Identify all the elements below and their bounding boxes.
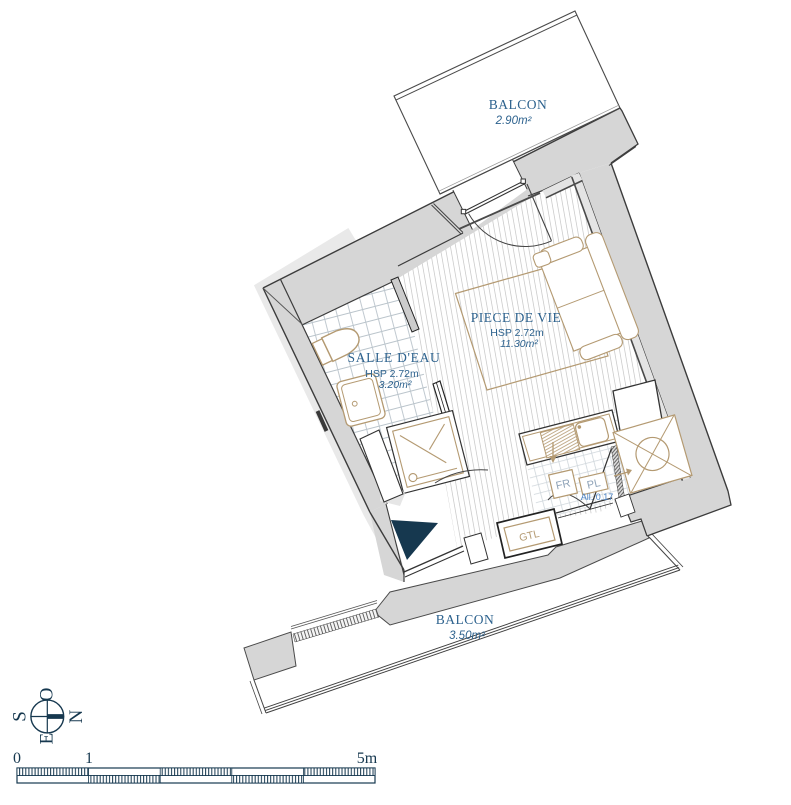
svg-text:2.90m²: 2.90m²: [495, 115, 533, 127]
svg-text:3.50m²: 3.50m²: [449, 630, 486, 642]
svg-text:11.30m²: 11.30m²: [500, 338, 538, 350]
svg-text:SALLE D'EAU: SALLE D'EAU: [348, 350, 441, 365]
svg-text:5m: 5m: [357, 750, 378, 767]
svg-text:O: O: [37, 688, 58, 702]
svg-text:1: 1: [85, 750, 93, 767]
svg-text:3.20m²: 3.20m²: [379, 379, 412, 391]
svg-text:All. 0.17: All. 0.17: [581, 492, 614, 502]
svg-text:S: S: [10, 711, 31, 722]
svg-text:BALCON: BALCON: [489, 97, 548, 112]
svg-text:E: E: [37, 733, 58, 745]
svg-text:PIECE DE VIE: PIECE DE VIE: [471, 310, 562, 325]
svg-text:N: N: [66, 709, 87, 723]
svg-text:0: 0: [13, 750, 21, 767]
svg-text:BALCON: BALCON: [436, 612, 495, 627]
